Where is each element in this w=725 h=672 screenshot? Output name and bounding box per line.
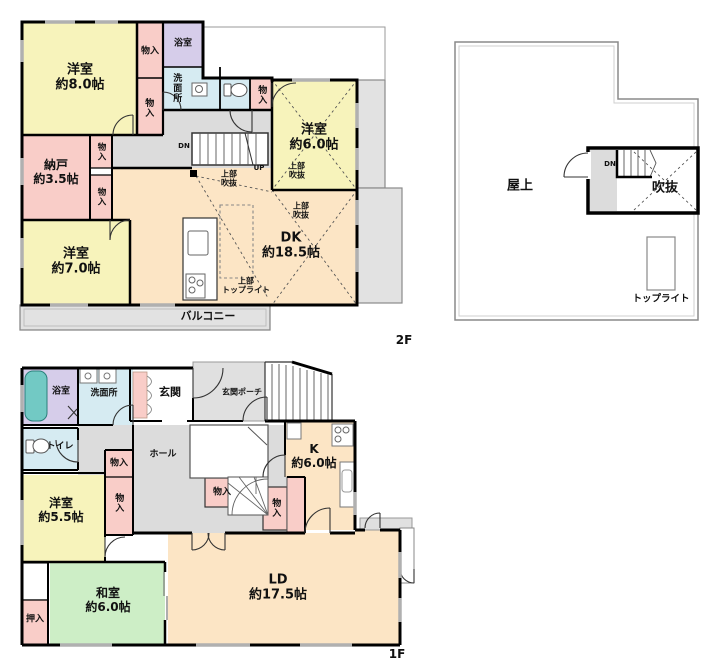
f1-label-monoiri-h: 物入 [213, 488, 231, 499]
f1-cabinet-strip [287, 477, 305, 533]
f1-fridge [287, 423, 301, 439]
f1-floor-tag: 1F [389, 647, 406, 661]
roof-label-okujo: 屋上 [507, 178, 533, 193]
f2-balcony-east-upper [357, 80, 385, 188]
f2-label-yokushitsu: 浴室 [174, 39, 192, 50]
f1-label-k: K約6.0帖 [291, 442, 336, 470]
f2-label-balcony: バルコニー [181, 311, 236, 324]
f1-shoe-cabinet [133, 372, 147, 418]
f1-label-genkan: 玄関 [159, 387, 181, 400]
f1-label-yokushitsu: 浴室 [52, 387, 70, 398]
f1-label-ld: LD約17.5帖 [249, 573, 307, 604]
f2-kitchen-sink [188, 231, 208, 255]
f1-bathtub [25, 371, 47, 421]
f1-shoe-cabinet-doors [147, 376, 152, 415]
f2-label-dk: DK約18.5帖 [262, 231, 320, 262]
f1-label-senmenjo: 洗面所 [90, 389, 117, 400]
f2-kitchen-stove [186, 274, 205, 298]
f2-balcony-east-lower [357, 188, 402, 303]
f2-label-yoshitsu6: 洋室約6.0帖 [289, 123, 338, 154]
f1-label-hall: ホール [149, 450, 176, 461]
f2-stairs [192, 133, 268, 165]
f2-eave-line [203, 27, 385, 80]
f2-label-senmenjo: 洗面所 [171, 73, 182, 103]
f2-label-monoiri-d: 物入 [96, 143, 106, 162]
f2-floor-tag: 2F [396, 333, 413, 347]
f2-label-up: UP [254, 164, 265, 172]
f2-wash-sink [192, 83, 207, 96]
f2-label-fukinuke-2: 上部吹抜 [293, 202, 309, 221]
f1-exterior-stairs [265, 362, 332, 421]
f2-column [190, 170, 197, 177]
f1-label-monoiri-f: 物入 [110, 459, 128, 470]
roof-toplight [647, 237, 675, 290]
roof-label-dn: DN [604, 160, 616, 168]
f2-label-dn: DN [178, 142, 190, 150]
f2-label-toplight: 上部トップライト [222, 277, 270, 296]
roof-label-toplight: トップライト [632, 293, 689, 304]
f2-label-monoiri-c: 物入 [143, 98, 154, 118]
f2-label-monoiri-b: 物入 [256, 85, 267, 105]
f2-label-yoshitsu7: 洋室約7.0帖 [51, 247, 100, 278]
f2-label-yoshitsu8: 洋室約8.0帖 [55, 63, 104, 94]
f2-toilet-bowl [231, 84, 247, 97]
f1-label-oshiire: 押入 [26, 615, 44, 626]
f2-label-monoiri-a: 物入 [141, 47, 159, 58]
f2-label-monoiri-e: 物入 [96, 188, 106, 207]
f2-label-fukinuke-1: 上部吹抜 [289, 162, 305, 181]
f2-toilet-tank [224, 84, 231, 96]
f1-label-porch: 玄関ポーチ [222, 387, 262, 396]
f2-label-fukinuke-3: 上部吹抜 [221, 170, 237, 189]
roof-label-fukinuke: 吹抜 [652, 180, 678, 195]
f1-side-step [400, 528, 414, 583]
f1-label-toire: トイレ [46, 442, 73, 453]
f1-label-yoshitsu55: 洋室約5.5帖 [38, 496, 83, 524]
roof-door-gap [584, 152, 591, 179]
f1-closet-white [22, 563, 48, 600]
f2-label-nando: 納戸約3.5帖 [33, 158, 78, 186]
f1-label-monoiri-i: 物入 [270, 498, 281, 518]
floorplan-drawing [0, 0, 725, 672]
f1-label-monoiri-g: 物入 [113, 493, 124, 513]
floorplan-page: 洋室約8.0帖 物入 浴室 洗面所 物入 物入 物入 物入 納戸約3.5帖 洋室… [0, 0, 725, 672]
f1-label-washitsu: 和室約6.0帖 [85, 586, 130, 614]
